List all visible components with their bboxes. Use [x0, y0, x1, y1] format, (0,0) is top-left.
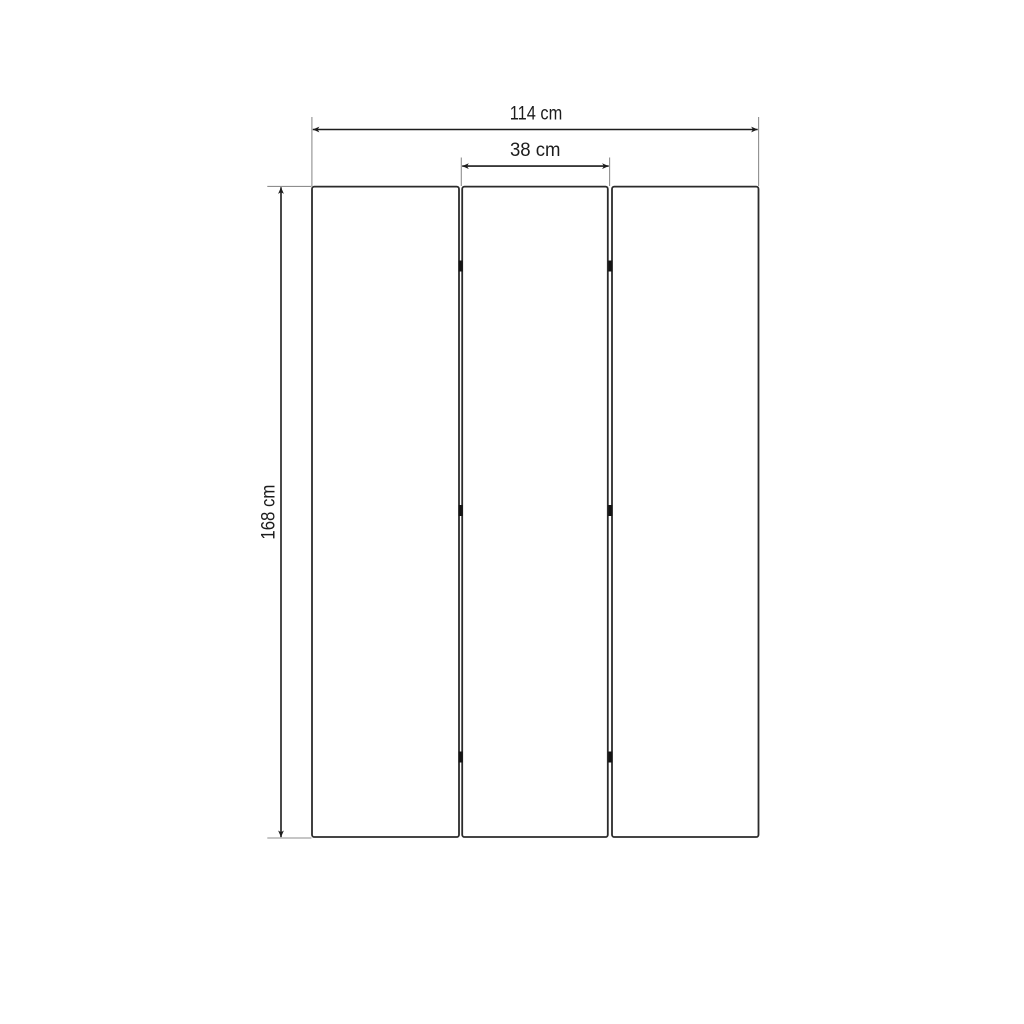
svg-text:114 cm: 114 cm [510, 104, 563, 125]
svg-text:38 cm: 38 cm [510, 140, 561, 161]
svg-text:168 cm: 168 cm [259, 485, 280, 540]
